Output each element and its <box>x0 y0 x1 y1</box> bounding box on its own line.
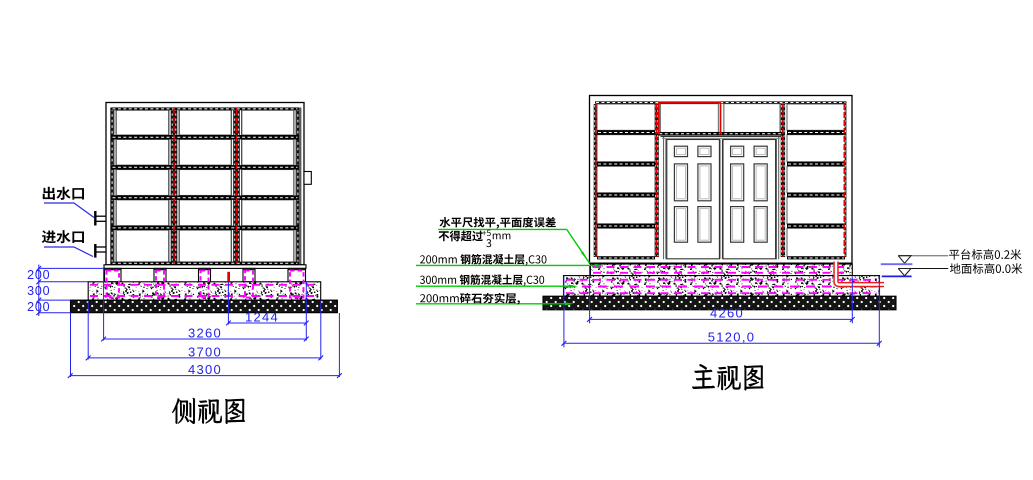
svg-text:4260: 4260 <box>710 305 744 320</box>
svg-text:3700: 3700 <box>188 344 222 359</box>
svg-text:3260: 3260 <box>188 326 222 341</box>
svg-text:5120,0: 5120,0 <box>708 329 756 344</box>
svg-text:200: 200 <box>27 268 50 282</box>
svg-text:4300: 4300 <box>188 362 222 377</box>
svg-text:1244: 1244 <box>245 310 279 325</box>
svg-text:300: 300 <box>27 284 50 298</box>
svg-text:200: 200 <box>27 300 50 314</box>
